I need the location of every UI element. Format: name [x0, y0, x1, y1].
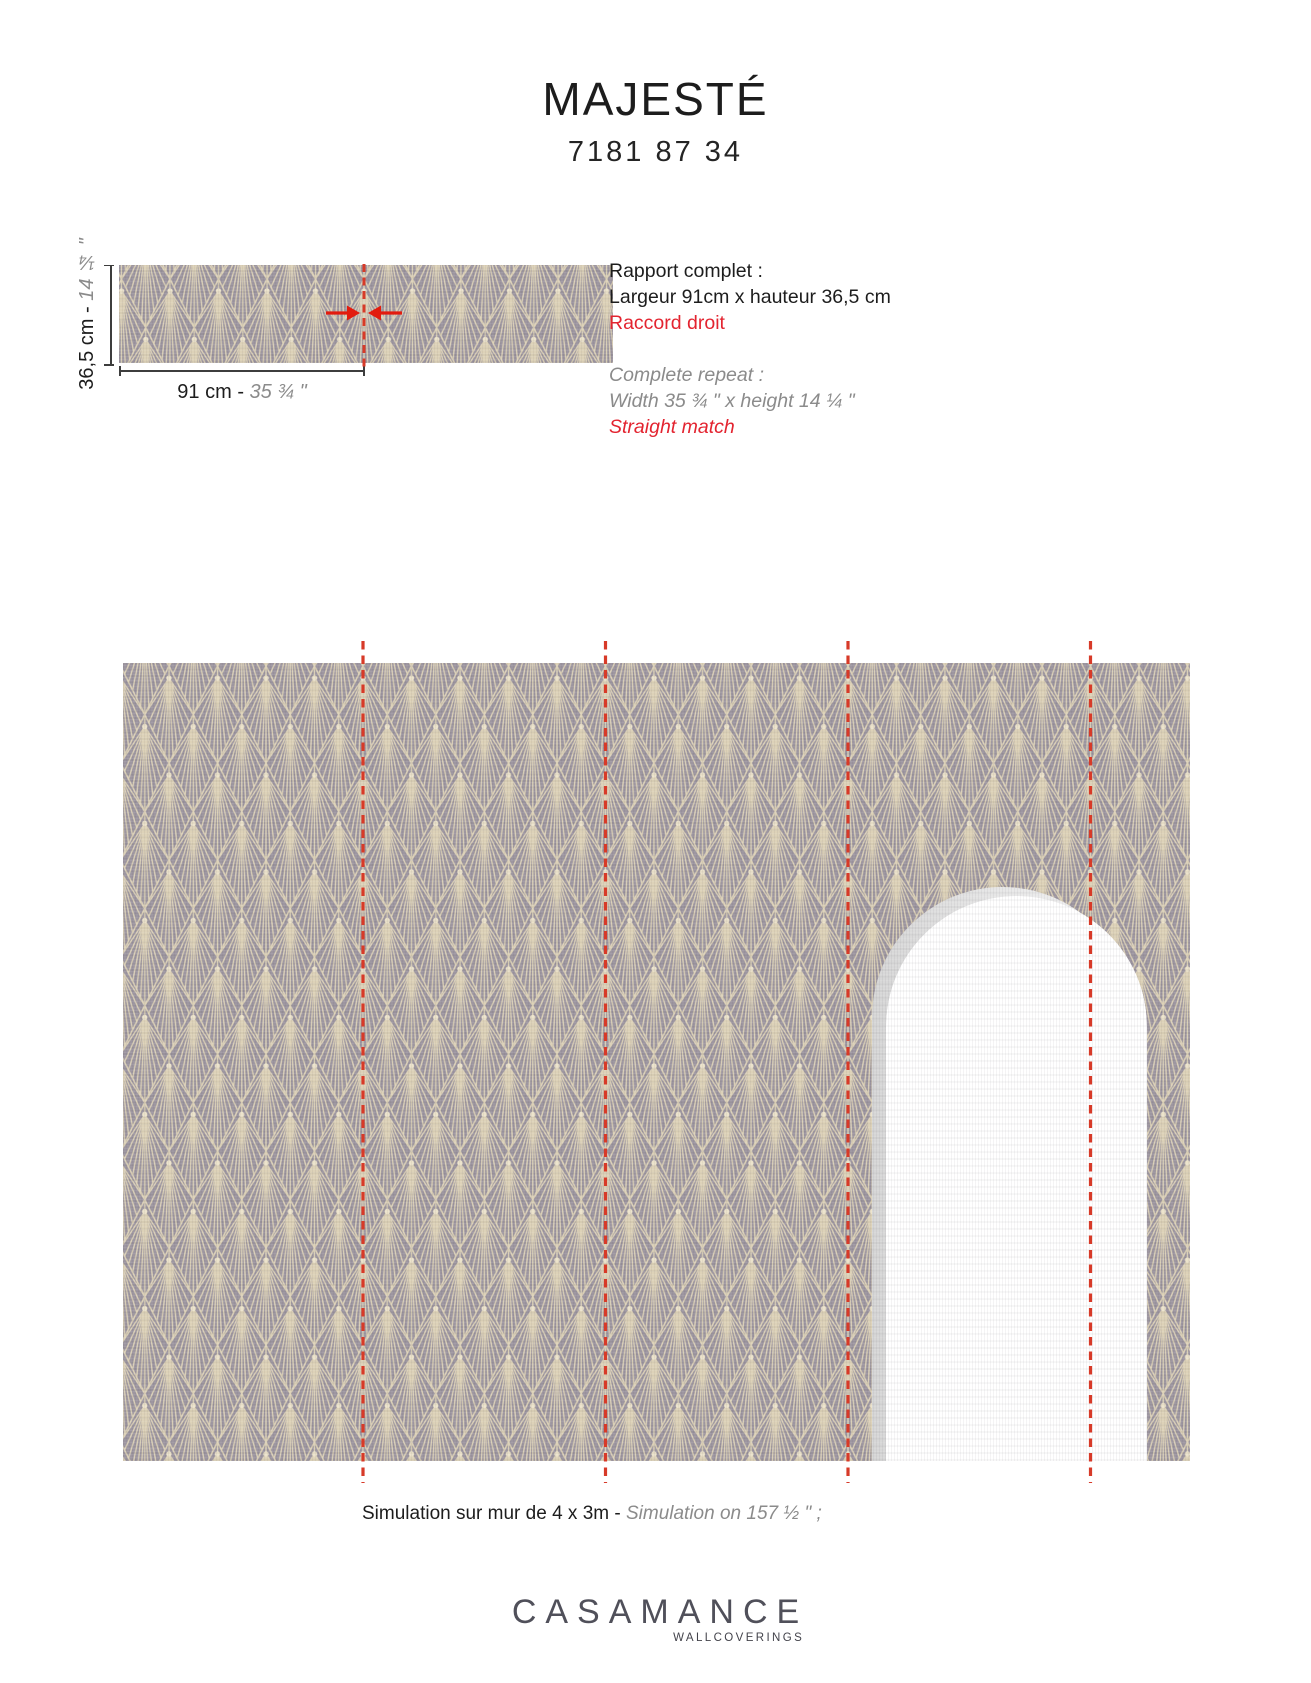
width-imperial-label: 35 ¾ " [250, 381, 307, 403]
arch-doorway [872, 887, 1147, 1461]
product-reference: 7181 87 34 [0, 136, 1311, 169]
height-imperial-label: 14 ¼ " [76, 238, 98, 300]
width-dimension-label: 91 cm - 35 ¾ " [119, 381, 365, 404]
spec-en-heading: Complete repeat : [609, 362, 891, 388]
height-dimension-tick-bottom [104, 364, 114, 366]
wall-simulation [123, 663, 1190, 1461]
spec-en-dimensions: Width 35 ¾ " x height 14 ¼ " [609, 388, 891, 414]
simulation-caption: Simulation sur mur de 4 x 3m - Simulatio… [362, 1503, 822, 1525]
spec-fr-match: Raccord droit [609, 310, 891, 336]
repeat-spec-block: Rapport complet : Largeur 91cm x hauteur… [609, 258, 891, 440]
brand-tagline: WALLCOVERINGS [503, 1632, 808, 1644]
repeat-strip-preview [119, 265, 613, 363]
spec-fr-dimensions: Largeur 91cm x hauteur 36,5 cm [609, 284, 891, 310]
wall-wallpaper-pattern [123, 663, 1190, 1461]
spec-sheet-page: { "title": "MAJESTÉ", "reference": "7181… [0, 0, 1311, 1683]
width-dimension-tick-left [119, 366, 121, 376]
width-dimension-line [119, 370, 365, 372]
spec-en-match: Straight match [609, 414, 891, 440]
height-dimension-tick-top [104, 265, 114, 267]
spec-fr-heading: Rapport complet : [609, 258, 891, 284]
spec-spacer [609, 336, 891, 362]
width-metric-label: 91 cm - [177, 381, 249, 403]
caption-en: Simulation on 157 ½ " ; [626, 1503, 822, 1524]
brand-name: CASAMANCE [503, 1593, 808, 1631]
brand-logo: CASAMANCE WALLCOVERINGS [503, 1593, 808, 1644]
height-metric-label: 36,5 cm - [76, 301, 98, 390]
height-dimension-label: 36,5 cm - 14 ¼ " [76, 238, 99, 389]
width-dimension-tick-right [363, 366, 365, 376]
page-title: MAJESTÉ [0, 72, 1311, 126]
height-dimension-line [110, 265, 112, 365]
repeat-strip-pattern [119, 265, 613, 363]
caption-fr: Simulation sur mur de 4 x 3m - [362, 1503, 626, 1524]
